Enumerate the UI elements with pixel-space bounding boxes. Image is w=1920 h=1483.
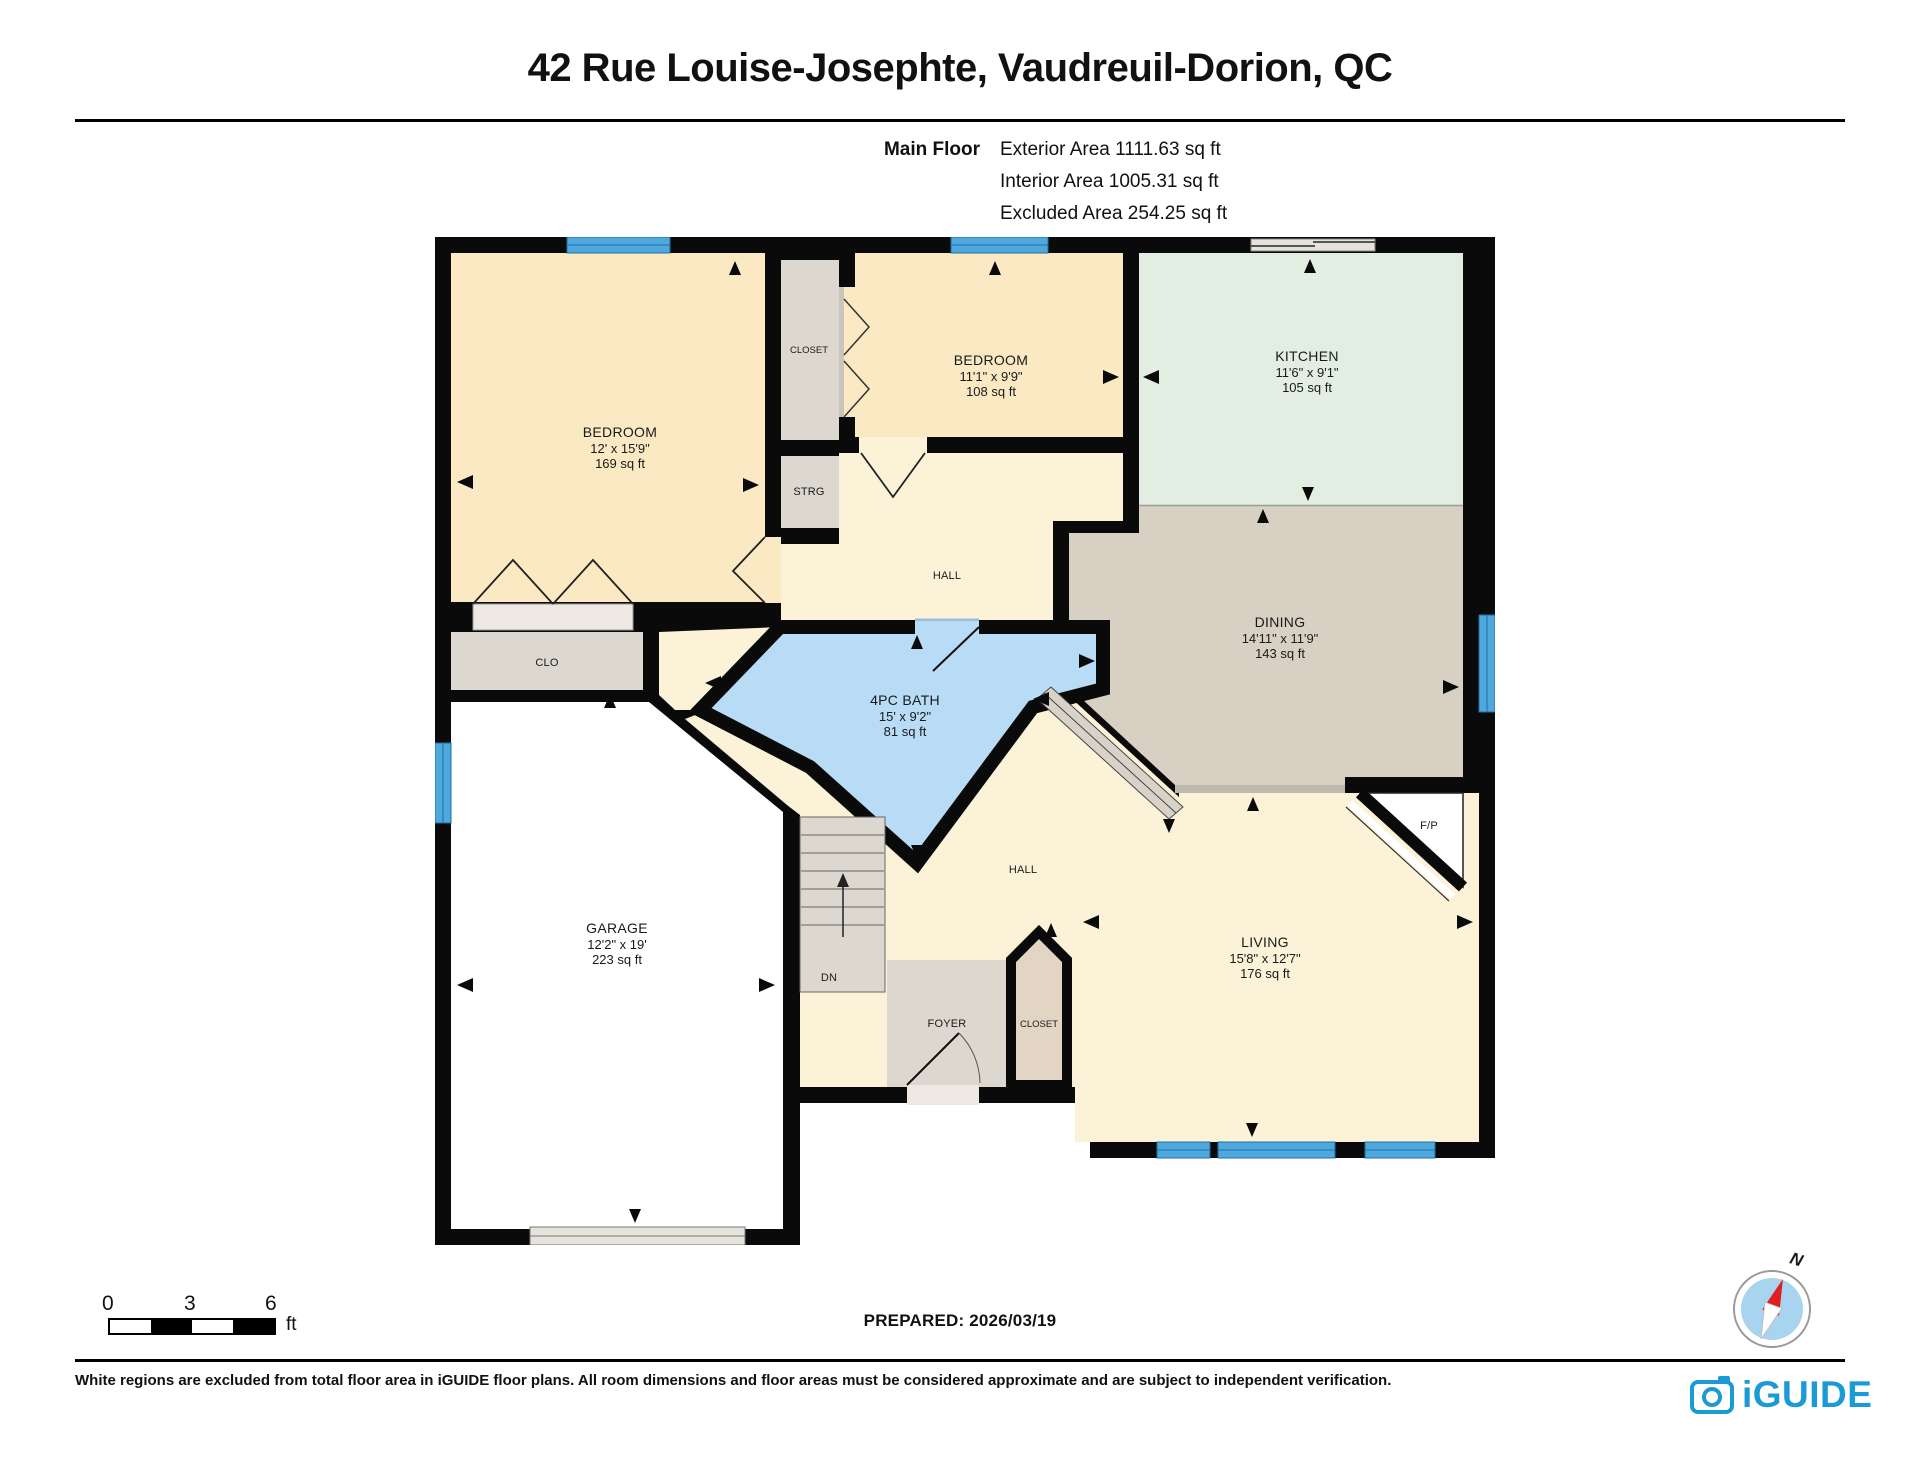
bedroom2-area: 108 sq ft	[966, 384, 1016, 399]
area-summary: Exterior Area 1111.63 sq ft Interior Are…	[1000, 134, 1227, 230]
foyer-room	[887, 960, 1007, 1105]
bedroom1-area: 169 sq ft	[595, 456, 645, 471]
hall-upper-label: HALL	[933, 570, 961, 582]
floor-plan-page: 42 Rue Louise-Josephte, Vaudreuil-Dorion…	[0, 0, 1920, 1483]
dining-dims: 14'11" x 11'9"	[1242, 631, 1319, 646]
garage-dims: 12'2" x 19'	[587, 937, 646, 952]
bedroom2-name: BEDROOM	[954, 352, 1028, 368]
kitchen-patio-door	[1251, 239, 1375, 251]
garage-name: GARAGE	[586, 920, 648, 936]
dn-label: DN	[821, 972, 837, 984]
foyer-label: FOYER	[928, 1018, 967, 1030]
entry-door-opening	[907, 1085, 979, 1105]
bedroom1-name: BEDROOM	[583, 424, 657, 440]
closet-label: CLOSET	[790, 345, 828, 356]
bath-dims: 15' x 9'2"	[879, 709, 932, 724]
floor-name-label: Main Floor	[700, 134, 980, 166]
bedroom1-dims: 12' x 15'9"	[590, 441, 650, 456]
compass-north-label: N	[1788, 1249, 1806, 1271]
iguide-wordmark: iGUIDE	[1742, 1374, 1872, 1416]
prepared-date: PREPARED: 2026/03/19	[0, 1311, 1920, 1331]
living-area: 176 sq ft	[1240, 966, 1290, 981]
strg-label: STRG	[793, 486, 824, 498]
bath-name: 4PC BATH	[870, 692, 940, 708]
entry-closet-label: CLOSET	[1020, 1019, 1058, 1030]
stairs-down	[800, 817, 885, 992]
floor-plan-drawing: BEDROOM 12' x 15'9" 169 sq ft BEDROOM 11…	[435, 237, 1495, 1245]
footer-divider	[75, 1359, 1845, 1362]
interior-area: Interior Area 1005.31 sq ft	[1000, 166, 1227, 198]
excluded-area: Excluded Area 254.25 sq ft	[1000, 198, 1227, 230]
dining-name: DINING	[1255, 614, 1306, 630]
fireplace-label: F/P	[1420, 820, 1438, 832]
bedroom2-dims: 11'1" x 9'9"	[959, 369, 1022, 384]
garage-area: 223 sq ft	[592, 952, 642, 967]
disclaimer-text: White regions are excluded from total fl…	[75, 1372, 1455, 1389]
living-dims: 15'8" x 12'7"	[1229, 951, 1301, 966]
dining-living-opening	[1175, 785, 1345, 793]
garage-door	[530, 1227, 745, 1245]
kitchen-name: KITCHEN	[1275, 348, 1339, 364]
living-name: LIVING	[1241, 934, 1289, 950]
dining-area: 143 sq ft	[1255, 646, 1305, 661]
compass-icon: N	[1712, 1247, 1836, 1359]
page-title: 42 Rue Louise-Josephte, Vaudreuil-Dorion…	[0, 46, 1920, 91]
hall-lower-label: HALL	[1009, 864, 1037, 876]
bedroom2-floor	[855, 253, 1123, 437]
exterior-area: Exterior Area 1111.63 sq ft	[1000, 134, 1227, 166]
bath-area: 81 sq ft	[884, 724, 927, 739]
header-divider	[75, 119, 1845, 122]
floor-plan: BEDROOM 12' x 15'9" 169 sq ft BEDROOM 11…	[435, 237, 1495, 1245]
kitchen-dims: 11'6" x 9'1"	[1275, 365, 1338, 380]
kitchen-area: 105 sq ft	[1282, 380, 1332, 395]
iguide-logo: iGUIDE	[1690, 1374, 1872, 1416]
clo-label: CLO	[535, 657, 558, 669]
entry-closet	[1011, 932, 1067, 1085]
iguide-camera-icon	[1690, 1376, 1734, 1414]
